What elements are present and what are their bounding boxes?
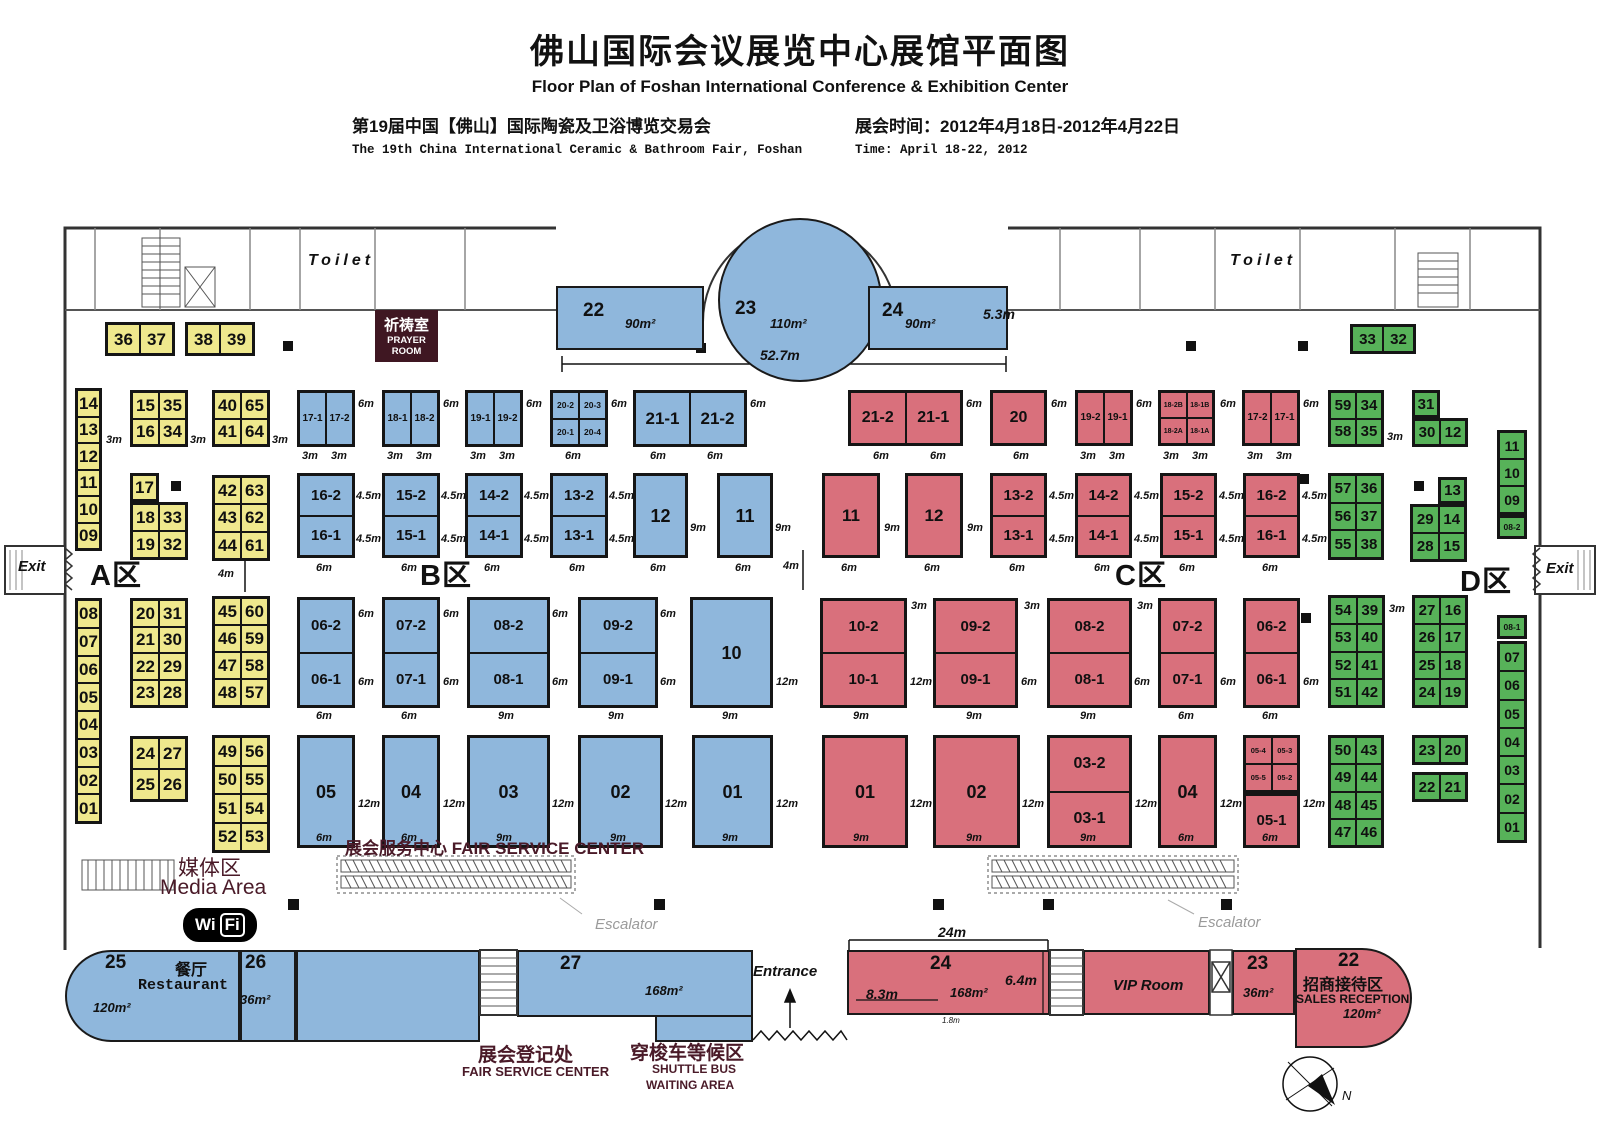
floor-plan-canvas: 佛山国际会议展览中心展馆平面图 Floor Plan of Foshan Int… <box>0 0 1600 1129</box>
entrance-ramp <box>753 990 847 1040</box>
stairwell-vip <box>1050 950 1083 1015</box>
stairwell-27 <box>480 950 517 1015</box>
elevator-right <box>1210 950 1232 1015</box>
overlay-structure <box>0 0 1600 1129</box>
compass <box>1283 1057 1337 1111</box>
